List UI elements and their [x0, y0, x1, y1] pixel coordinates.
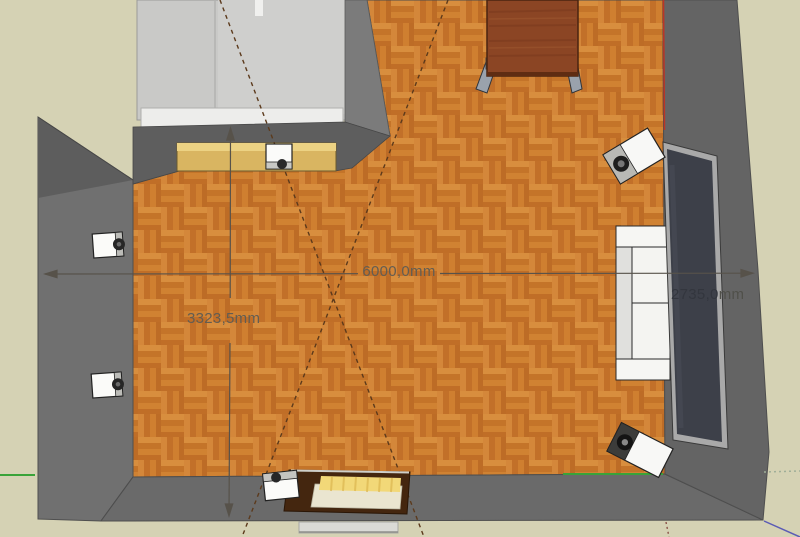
bed[interactable]	[284, 470, 410, 514]
dimension-right-hidden-digits: 2735,0	[671, 286, 719, 303]
speaker-left-2[interactable]	[91, 372, 125, 398]
sofa-armrest-top	[616, 226, 670, 247]
bay-mullion	[255, 0, 263, 16]
sofa-armrest-bottom	[616, 359, 670, 380]
sofa-seat-1	[632, 247, 670, 303]
outside-step	[299, 522, 398, 533]
3d-viewport[interactable]: 6000,0mm 3323,5mm 2735,0mm	[0, 0, 800, 537]
red-axis	[664, 0, 665, 130]
sofa[interactable]	[616, 226, 670, 380]
dimension-right-unit: mm	[719, 286, 745, 303]
table-edge	[487, 72, 578, 76]
dimension-label-width[interactable]: 6000,0mm	[358, 264, 440, 279]
sofa-seat-2	[632, 303, 670, 359]
wall-shelf[interactable]	[177, 143, 336, 171]
sofa-backrest	[616, 247, 632, 359]
speaker-shelf[interactable]	[266, 144, 292, 169]
speaker-left-1[interactable]	[92, 232, 126, 258]
speaker-driver-icon	[277, 159, 287, 169]
speaker-bottom[interactable]	[263, 470, 300, 500]
window-bay[interactable]	[137, 0, 347, 128]
dimension-label-height[interactable]: 3323,5mm	[187, 311, 260, 326]
dimension-label-right-partial[interactable]: 2735,0mm	[671, 287, 744, 302]
bottom-wall[interactable]	[101, 474, 763, 521]
